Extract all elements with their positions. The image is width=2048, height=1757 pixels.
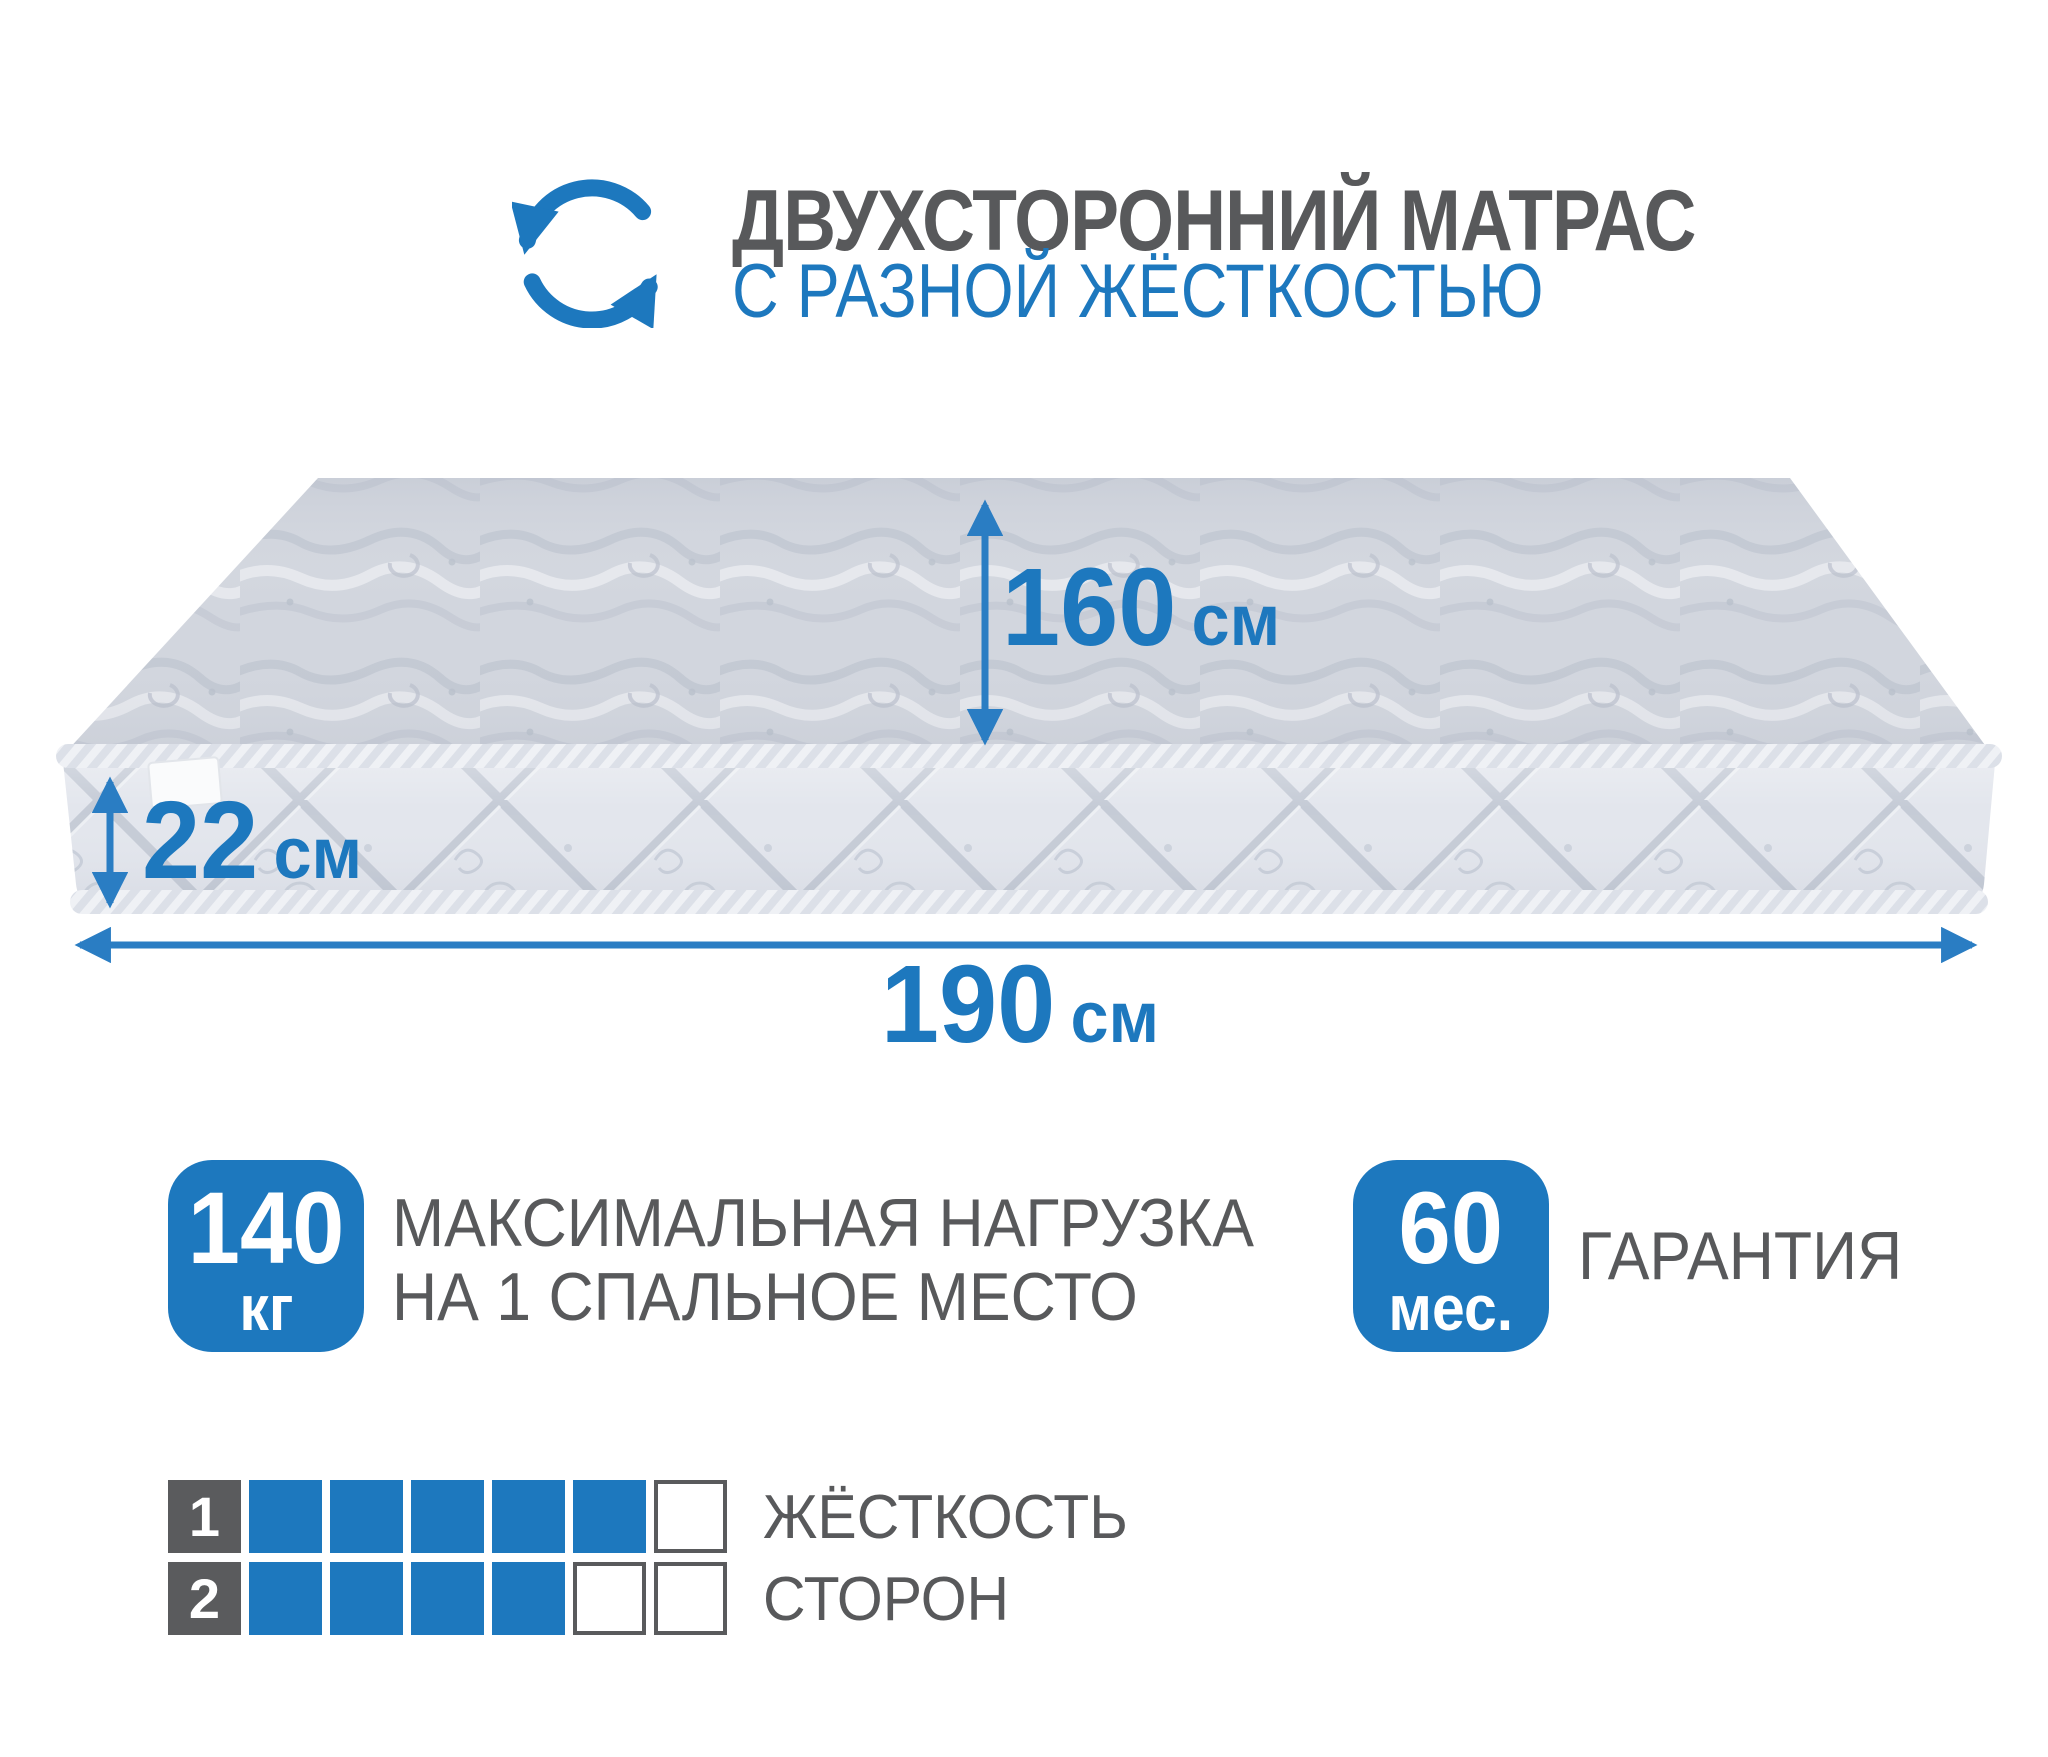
- mattress-top-piping: [56, 744, 2002, 768]
- firmness-cells: [249, 1480, 727, 1553]
- warranty-unit: мес.: [1389, 1279, 1514, 1338]
- firmness-cell-filled: [249, 1562, 322, 1635]
- max-load-value: 140: [188, 1177, 345, 1279]
- firmness-cell-empty: [654, 1480, 727, 1553]
- max-load-badge: 140 кг: [168, 1160, 364, 1352]
- firmness-caption-line2: СТОРОН: [763, 1562, 1009, 1636]
- max-load-caption-line2: НА 1 СПАЛЬНОЕ МЕСТО: [392, 1260, 1254, 1334]
- firmness-cells: [249, 1562, 727, 1635]
- firmness-cell-filled: [492, 1480, 565, 1553]
- firmness-cell-filled: [330, 1480, 403, 1553]
- max-load-caption-line1: МАКСИМАЛЬНАЯ НАГРУЗКА: [392, 1186, 1254, 1260]
- firmness-caption-line1: ЖЁСТКОСТЬ: [763, 1480, 1128, 1554]
- firmness-cell-empty: [573, 1562, 646, 1635]
- depth-dimension-label: 160см: [1002, 553, 1280, 663]
- warranty-value: 60: [1399, 1177, 1503, 1279]
- rotate-arrows-icon: [512, 178, 672, 328]
- max-load-caption: МАКСИМАЛЬНАЯ НАГРУЗКА НА 1 СПАЛЬНОЕ МЕСТ…: [392, 1186, 1254, 1334]
- page-subtitle: С РАЗНОЙ ЖЁСТКОСТЬЮ: [732, 254, 1544, 330]
- firmness-cell-filled: [411, 1480, 484, 1553]
- firmness-row-side1: 1: [168, 1480, 727, 1553]
- height-unit: см: [273, 814, 362, 894]
- firmness-row-side2: 2: [168, 1562, 727, 1635]
- firmness-cell-filled: [249, 1480, 322, 1553]
- height-value: 22: [142, 779, 258, 902]
- width-unit: см: [1070, 978, 1159, 1058]
- depth-unit: см: [1192, 581, 1281, 661]
- firmness-cell-filled: [330, 1562, 403, 1635]
- warranty-caption-line1: ГАРАНТИЯ: [1578, 1219, 1902, 1293]
- firmness-cell-empty: [654, 1562, 727, 1635]
- warranty-caption: ГАРАНТИЯ: [1578, 1219, 1902, 1293]
- width-value: 190: [881, 943, 1055, 1066]
- warranty-badge: 60 мес.: [1353, 1160, 1549, 1352]
- max-load-unit: кг: [239, 1279, 293, 1338]
- firmness-cell-filled: [492, 1562, 565, 1635]
- firmness-side-number: 1: [168, 1480, 241, 1553]
- mattress-infographic: ДВУХСТОРОННИЙ МАТРАС С РАЗНОЙ ЖЁСТКОСТЬЮ…: [0, 0, 2048, 1757]
- firmness-cell-filled: [573, 1480, 646, 1553]
- firmness-cell-filled: [411, 1562, 484, 1635]
- height-dimension-label: 22см: [142, 786, 362, 896]
- width-dimension-label: 190см: [735, 950, 1305, 1060]
- firmness-side-number: 2: [168, 1562, 241, 1635]
- depth-value: 160: [1002, 546, 1176, 669]
